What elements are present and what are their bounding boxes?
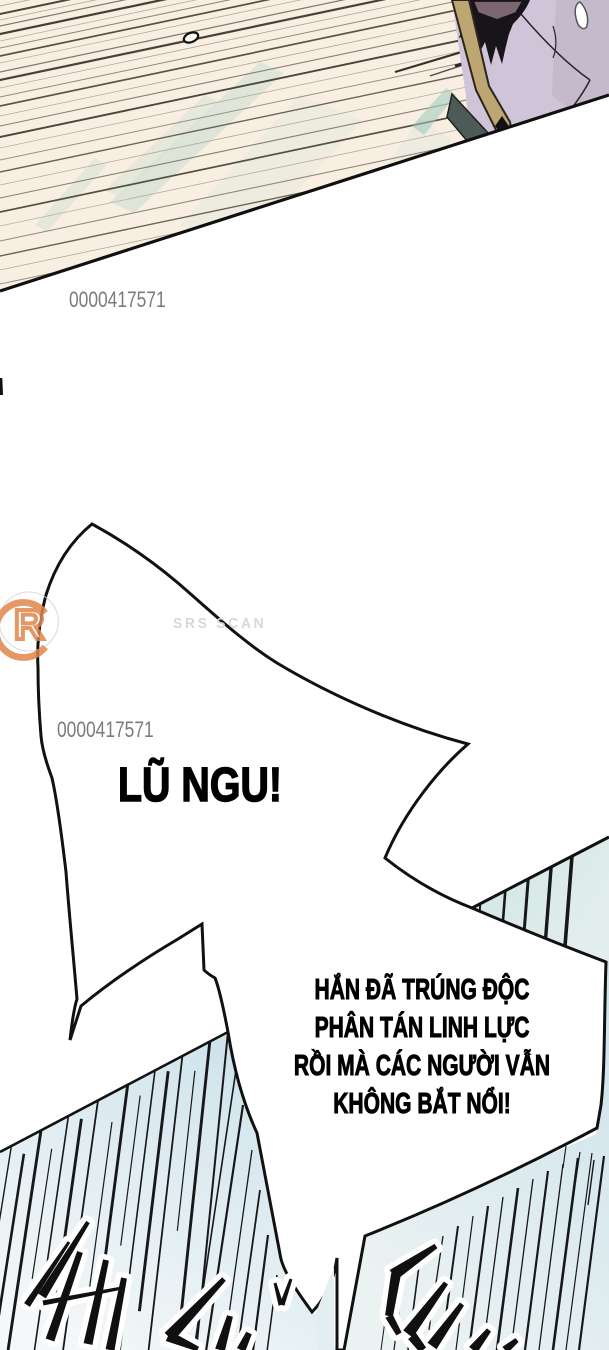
svg-text:R: R: [14, 601, 44, 648]
